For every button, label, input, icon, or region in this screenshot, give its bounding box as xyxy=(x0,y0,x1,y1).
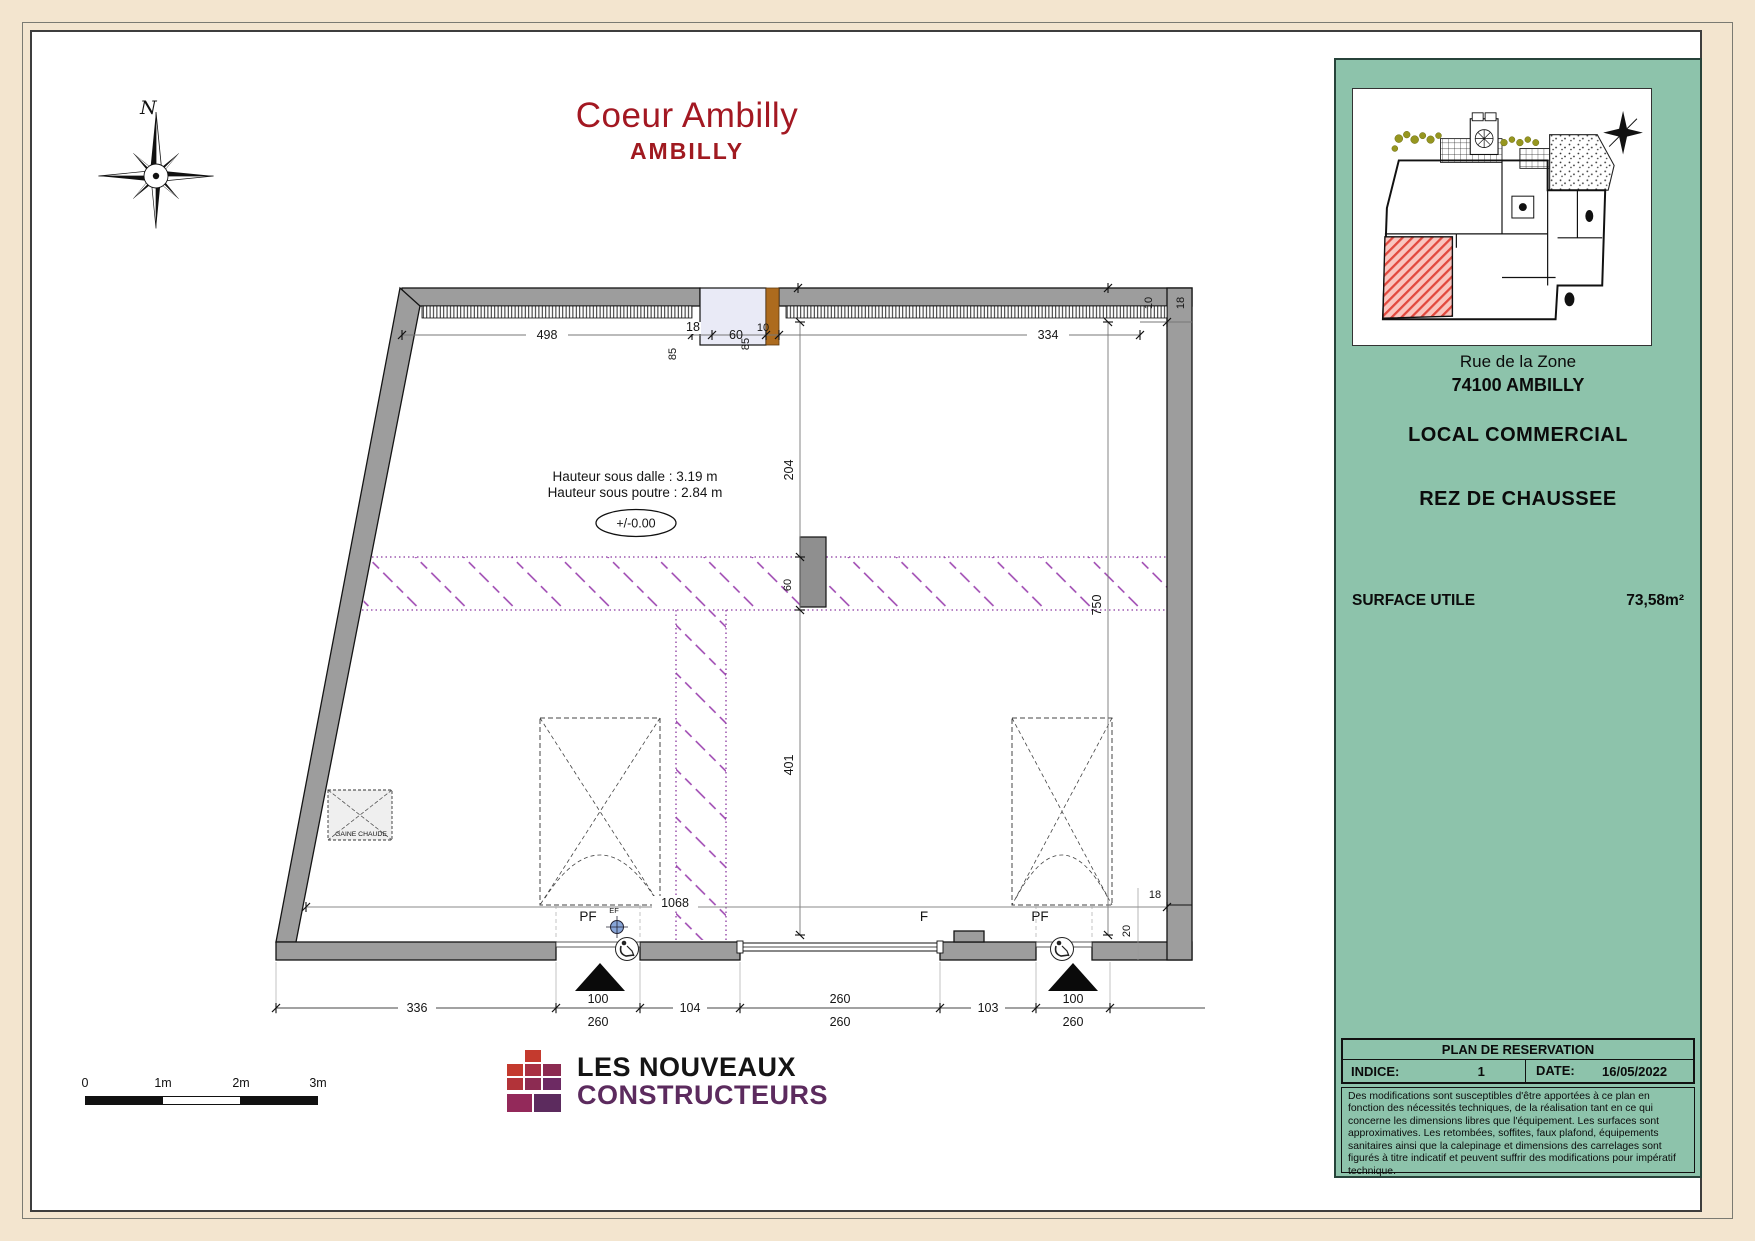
level-label: REZ DE CHAUSSEE xyxy=(1336,488,1700,511)
logo-icon xyxy=(505,1050,563,1114)
surface-value: 73,58m² xyxy=(1626,592,1684,610)
location-thumbnail xyxy=(1352,88,1652,346)
entrance-arrow-icon xyxy=(575,963,625,991)
beam-zone-vertical xyxy=(676,610,726,940)
plumbing-marker-icon xyxy=(606,916,628,938)
level-marker: +/-0.00 xyxy=(596,510,676,537)
floor-plan: GAINE CHAUDE Hauteur sous dalle : 3.19 m… xyxy=(240,250,1230,1050)
dim-label: 334 xyxy=(1038,328,1059,342)
dim-label: 85 xyxy=(667,348,679,360)
dim-label: 60 xyxy=(782,579,794,591)
dim-label: 100 xyxy=(588,992,609,1006)
reservation-table: PLAN DE RESERVATION INDICE: 1 DATE: 16/0… xyxy=(1341,1038,1695,1084)
project-title: Coeur Ambilly xyxy=(487,96,887,136)
dim-label: 18 xyxy=(1149,889,1161,901)
pf-zone-right xyxy=(1012,718,1112,905)
company-logo: LES NOUVEAUX CONSTRUCTEURS xyxy=(505,1050,828,1114)
dim-label: 1068 xyxy=(661,896,689,910)
dim-chain-right: 750 xyxy=(1090,318,1113,939)
dim-label: 260 xyxy=(830,1015,851,1029)
compass-rose-icon: N xyxy=(88,86,224,236)
title-block: Coeur Ambilly AMBILLY xyxy=(487,96,887,165)
dim-label: 18 xyxy=(686,320,700,334)
dim-label: 20 xyxy=(1121,925,1133,937)
pf-right-label: PF xyxy=(1031,909,1048,924)
column xyxy=(800,537,826,607)
side-panel: Rue de la Zone 74100 AMBILLY LOCAL COMME… xyxy=(1334,58,1702,1178)
mini-plan xyxy=(1353,89,1651,345)
dim-label: 100 xyxy=(1063,992,1084,1006)
storefront-window xyxy=(737,941,943,953)
pf-zone-left xyxy=(540,718,660,905)
entrance-arrow-icon xyxy=(1048,963,1098,991)
local-type: LOCAL COMMERCIAL xyxy=(1336,424,1700,447)
dim-chain-bottom: 336 100 260 104 260 260 103 100 260 xyxy=(272,905,1205,1029)
svg-text:+/-0.00: +/-0.00 xyxy=(616,517,655,531)
scale-label-0: 0 xyxy=(82,1076,89,1090)
dim-label: 204 xyxy=(782,460,796,481)
ceiling-height-slab: Hauteur sous dalle : 3.19 m xyxy=(552,469,717,484)
accessibility-icon xyxy=(1051,938,1074,961)
dim-label: 10 xyxy=(1143,297,1155,309)
ceiling-height-beam: Hauteur sous poutre : 2.84 m xyxy=(548,485,723,500)
gaine-chaude-box: GAINE CHAUDE xyxy=(328,790,392,840)
dim-label: 85 xyxy=(740,338,752,350)
indice-label: INDICE: xyxy=(1343,1064,1438,1079)
north-star-icon xyxy=(1603,111,1643,155)
reservation-title: PLAN DE RESERVATION xyxy=(1343,1040,1693,1060)
beam-zone-horizontal xyxy=(362,557,1167,610)
scale-label-1: 1m xyxy=(154,1076,171,1090)
insulation-band xyxy=(786,306,1167,318)
f-label: F xyxy=(920,909,928,924)
entrance-door-right xyxy=(1036,938,1092,961)
address-line-2: 74100 AMBILLY xyxy=(1336,375,1700,396)
dim-label: 103 xyxy=(978,1001,999,1015)
scale-bar-segments xyxy=(85,1096,318,1105)
surface-label: SURFACE UTILE xyxy=(1352,592,1475,610)
scale-label-2: 2m xyxy=(232,1076,249,1090)
dim-label: 18 xyxy=(1175,297,1187,309)
date-value: 16/05/2022 xyxy=(1602,1064,1693,1079)
dim-label: 401 xyxy=(782,755,796,776)
dim-label: 260 xyxy=(830,992,851,1006)
entrance-door-left xyxy=(556,938,640,961)
dim-label: 10 xyxy=(757,322,769,334)
accessibility-icon xyxy=(616,938,639,961)
project-subtitle: AMBILLY xyxy=(487,138,887,165)
scale-label-3: 3m xyxy=(309,1076,326,1090)
address-line-1: Rue de la Zone xyxy=(1336,352,1700,372)
disclaimer-text: Des modifications sont susceptibles d'êt… xyxy=(1341,1087,1695,1173)
pf-left-label: PF xyxy=(579,909,596,924)
insulation-band xyxy=(422,306,692,318)
surface-row: SURFACE UTILE 73,58m² xyxy=(1352,592,1684,610)
dim-label: 336 xyxy=(407,1001,428,1015)
date-label: DATE: xyxy=(1525,1060,1602,1082)
logo-line-2: CONSTRUCTEURS xyxy=(577,1082,828,1110)
dim-label: 104 xyxy=(680,1001,701,1015)
dim-label: 750 xyxy=(1090,595,1104,616)
gaine-chaude-label: GAINE CHAUDE xyxy=(335,831,387,838)
scale-bar: 0 1m 2m 3m xyxy=(85,1076,318,1114)
dim-chain-center: 204 60 401 xyxy=(782,318,805,939)
north-label: N xyxy=(139,97,158,119)
indice-value: 1 xyxy=(1438,1064,1526,1079)
walls xyxy=(276,288,1192,960)
drawing-page: { "title": { "project": "Coeur Ambilly",… xyxy=(0,0,1755,1241)
dim-label: 498 xyxy=(537,328,558,342)
stair-icon xyxy=(1470,113,1498,155)
dim-label: 260 xyxy=(588,1015,609,1029)
fixtures xyxy=(1512,196,1593,306)
dim-label: 260 xyxy=(1063,1015,1084,1029)
logo-line-1: LES NOUVEAUX xyxy=(577,1054,828,1082)
unit-highlight xyxy=(1383,237,1452,318)
